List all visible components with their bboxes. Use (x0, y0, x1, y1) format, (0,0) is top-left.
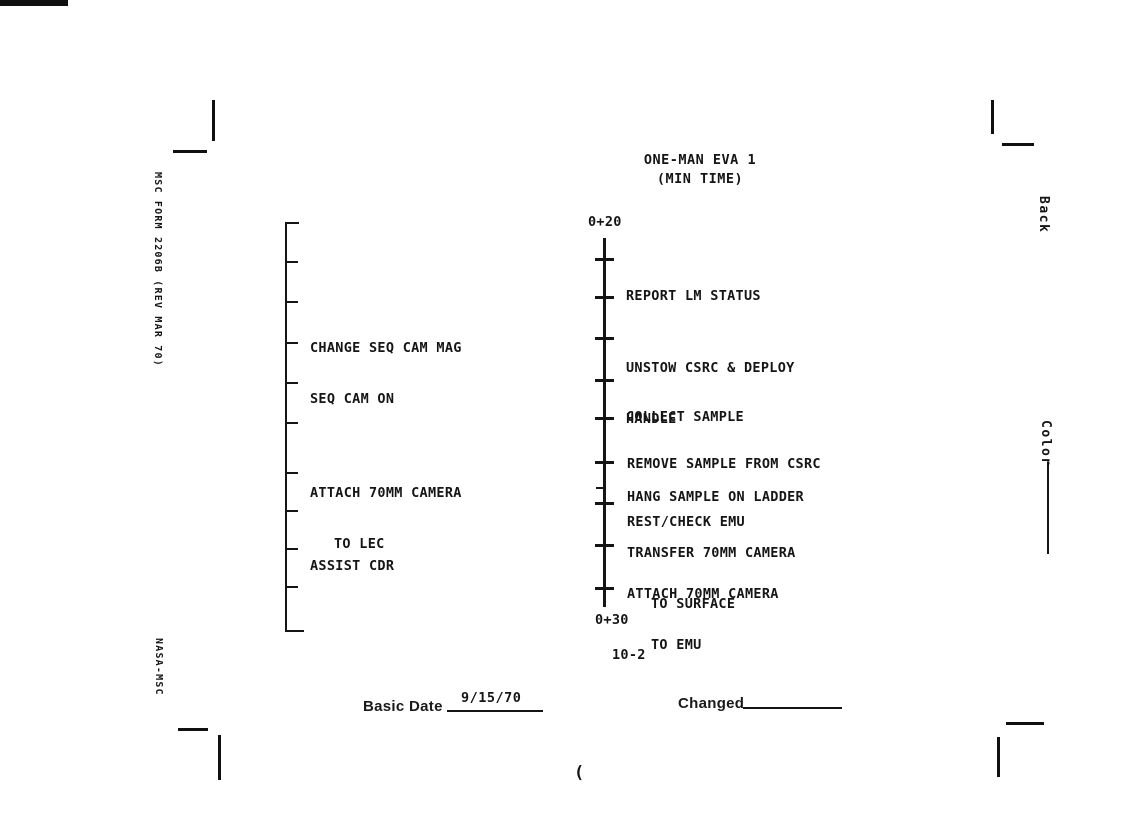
registration-mark (1002, 143, 1034, 146)
left-timeline-top-foot (285, 222, 299, 224)
timeline-tick (596, 487, 605, 489)
timeline-tick (286, 382, 298, 384)
task-line: SEQ CAM ON (310, 391, 462, 408)
task-line: ATTACH 70MM CAMERA (310, 485, 462, 502)
basic-date-value: 9/15/70 (461, 690, 521, 706)
task-line: REPORT LM STATUS (626, 288, 761, 305)
timeline-tick (286, 261, 298, 263)
nasa-msc-label: NASA-MSC (153, 638, 164, 696)
page-number: 10-2 (612, 647, 646, 664)
registration-mark (218, 735, 221, 780)
task-attach-camera-emu: ATTACH 70MM CAMERA TO EMU (627, 552, 779, 688)
task-change-seq-cam-mag: CHANGE SEQ CAM MAG SEQ CAM ON (310, 306, 462, 442)
registration-mark (212, 100, 215, 141)
timeline-tick (595, 587, 614, 590)
left-timeline-bottom-foot (285, 630, 304, 632)
page-title: ONE-MAN EVA 1 (590, 151, 810, 170)
scanned-page: MSC FORM 2206B (REV MAR 70) NASA-MSC Bac… (0, 0, 1145, 824)
page-title-block: ONE-MAN EVA 1 (MIN TIME) (590, 151, 810, 189)
left-timeline-line (285, 222, 287, 632)
task-line: ATTACH 70MM CAMERA (627, 586, 779, 603)
timeline-start-label: 0+20 (588, 214, 622, 231)
timeline-tick (595, 417, 614, 420)
color-fill-line (1047, 462, 1049, 554)
timeline-tick (595, 544, 614, 547)
task-line: ASSIST CDR (310, 558, 394, 575)
scan-artifact-bar (0, 0, 68, 6)
timeline-tick (595, 379, 614, 382)
timeline-tick (595, 502, 614, 505)
changed-blank-line (743, 707, 842, 709)
task-line: TO EMU (627, 637, 779, 654)
timeline-tick (286, 301, 298, 303)
registration-mark (991, 100, 994, 134)
scan-stray-mark: ( (574, 763, 584, 783)
timeline-tick (595, 337, 614, 340)
timeline-tick (595, 461, 614, 464)
timeline-tick (286, 586, 298, 588)
timeline-tick (595, 296, 614, 299)
basic-date-blank-line (447, 710, 543, 712)
back-tab-label: Back (1036, 196, 1051, 233)
timeline-end-label: 0+30 (595, 612, 629, 629)
timeline-tick (286, 422, 298, 424)
page-subtitle: (MIN TIME) (590, 170, 810, 189)
registration-mark (178, 728, 208, 731)
timeline-tick (595, 258, 614, 261)
timeline-tick (286, 472, 298, 474)
color-tab-label: Color (1038, 420, 1053, 467)
timeline-tick (286, 548, 298, 550)
registration-mark (173, 150, 207, 153)
basic-date-label: Basic Date (363, 698, 443, 715)
task-line: CHANGE SEQ CAM MAG (310, 340, 462, 357)
center-timeline-line (603, 238, 606, 607)
registration-mark (997, 737, 1000, 777)
task-assist-cdr: ASSIST CDR (310, 524, 394, 609)
timeline-tick (286, 510, 298, 512)
registration-mark (1006, 722, 1044, 725)
timeline-tick (286, 342, 298, 344)
form-number-label: MSC FORM 2206B (REV MAR 70) (152, 172, 163, 367)
changed-label: Changed (678, 695, 744, 712)
